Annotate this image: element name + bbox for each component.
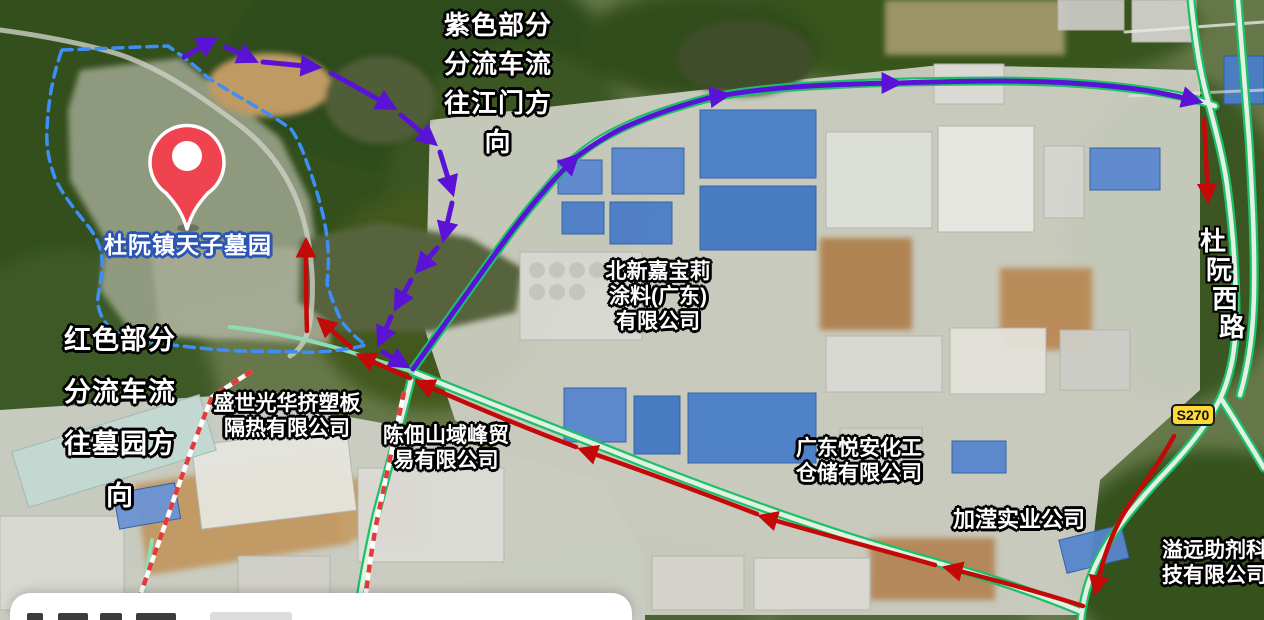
- pin-label-text: 杜阮镇天子墓园: [104, 232, 272, 258]
- s270-route-badge: S270: [1171, 404, 1215, 426]
- poi-label-yuean-chemical: 广东悦安化工 仓储有限公司: [786, 436, 932, 486]
- bottom-card[interactable]: [10, 593, 632, 620]
- poi-label-yiyuan-auxiliary: 溢远助剂科 技有限公司: [1162, 538, 1264, 588]
- note-purple-route: 紫色部分 分流车流 往江门方 向: [438, 6, 558, 162]
- satellite-map[interactable]: 杜阮镇天子墓园 紫色部分 分流车流 往江门方 向 红色部分 分流车流 往墓园方 …: [0, 0, 1264, 620]
- bottom-card-cutoff-text: [27, 613, 43, 620]
- poi-label-shengshi-guanghua: 盛世光华挤塑板 隔热有限公司: [202, 391, 372, 441]
- poi-label-jiaying-industrial: 加滢实业公司: [948, 507, 1090, 532]
- bottom-card-cutoff-button: [210, 612, 292, 620]
- note-red-route: 红色部分 分流车流 往墓园方 向: [58, 314, 182, 522]
- pin-label: 杜阮镇天子墓园: [98, 226, 278, 260]
- poi-label-bnbm-carpoly: 北新嘉宝莉 涂料(广东) 有限公司: [594, 259, 722, 334]
- poi-label-chendian-trading: 陈佃山域峰贸 易有限公司: [360, 423, 532, 473]
